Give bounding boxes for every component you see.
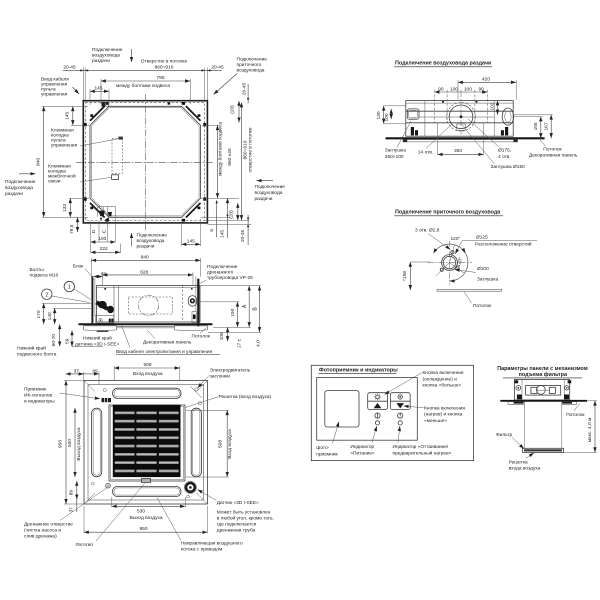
svg-text:Индикатор: Индикатор (350, 444, 374, 450)
svg-text:Потолок: Потолок (566, 412, 585, 418)
svg-text:между болтами подвеса: между болтами подвеса (116, 83, 170, 89)
svg-text:20-45: 20-45 (242, 83, 248, 96)
svg-text:в любой угол, кроме того,: в любой угол, кроме того, (217, 514, 274, 521)
svg-text:795: 795 (156, 75, 164, 81)
svg-text:Логотип: Логотип (76, 542, 94, 548)
svg-text:воздуховода: воздуховода (5, 186, 33, 191)
svg-text:(нагрев) и кнопка: (нагрев) и кнопка (424, 412, 463, 418)
svg-text:145: 145 (187, 238, 195, 244)
svg-text:20-45: 20-45 (211, 65, 224, 71)
svg-text:20-45: 20-45 (240, 230, 246, 243)
svg-text:Потолок: Потолок (473, 303, 492, 309)
svg-text:воздуховода: воздуховода (237, 69, 265, 74)
svg-text:3 отв. Ø2,8: 3 отв. Ø2,8 (415, 228, 440, 234)
svg-text:Фотоприемник и индикаторы: Фотоприемник и индикаторы (319, 368, 398, 374)
svg-text:межблочной: межблочной (48, 173, 76, 180)
svg-text:840: 840 (36, 157, 42, 165)
svg-text:2: 2 (45, 292, 48, 298)
svg-text:Индикатор «Оттаивание/: Индикатор «Оттаивание/ (393, 444, 449, 450)
svg-text:Электродвигатель: Электродвигатель (210, 368, 251, 374)
svg-text:Подключение: Подключение (255, 184, 286, 190)
svg-text:дренажного: дренажного (207, 271, 234, 276)
svg-text:37: 37 (68, 507, 74, 513)
svg-text:фото-: фото- (316, 445, 329, 451)
svg-text:145: 145 (94, 86, 102, 92)
svg-text:860~910: 860~910 (242, 140, 248, 159)
svg-text:потока с приводом: потока с приводом (181, 548, 223, 553)
svg-text:508: 508 (218, 440, 224, 448)
svg-text:20-45: 20-45 (63, 65, 76, 71)
svg-text:ИК-сигналов: ИК-сигналов (24, 393, 53, 399)
svg-text:79,5: 79,5 (69, 224, 75, 234)
svg-text:Расположение отверстий: Расположение отверстий (475, 240, 532, 247)
svg-text:дренажная труба: дренажная труба (217, 527, 256, 533)
svg-text:где подключается: где подключается (217, 522, 257, 527)
svg-text:Блок: Блок (73, 264, 85, 270)
svg-text:102: 102 (490, 102, 496, 110)
svg-text:Декоративная панель: Декоративная панель (529, 153, 578, 159)
svg-text:Выход воздуха: Выход воздуха (129, 515, 162, 521)
svg-text:Потолок: Потолок (192, 334, 211, 340)
svg-text:заслонки: заслонки (210, 375, 231, 380)
svg-text:59: 59 (64, 338, 70, 344)
svg-text:350×100: 350×100 (385, 154, 404, 160)
svg-text:145: 145 (65, 111, 71, 119)
svg-text:подвеса M10: подвеса M10 (30, 273, 59, 279)
svg-text:Подключение: Подключение (137, 233, 168, 239)
svg-text:50-70: 50-70 (51, 334, 57, 347)
svg-text:Приемник: Приемник (24, 387, 47, 393)
svg-text:(20): (20) (228, 210, 234, 219)
svg-text:508: 508 (143, 362, 151, 368)
svg-text:17 ±: 17 ± (236, 338, 242, 348)
svg-text:4 отв.: 4 отв. (498, 154, 511, 160)
svg-text:660 ±45: 660 ±45 (227, 148, 233, 166)
svg-text:6: 6 (209, 229, 215, 232)
svg-text:C: C (102, 229, 108, 233)
svg-text:воздуховода: воздуховода (137, 239, 165, 244)
svg-text:530: 530 (67, 439, 73, 447)
svg-text:Болты: Болты (30, 267, 45, 273)
svg-text:и индикаторы: и индикаторы (24, 400, 55, 405)
svg-text:Нижний край: Нижний край (83, 335, 112, 342)
svg-text:100: 100 (464, 86, 472, 92)
svg-text:Кнопка включения: Кнопка включения (423, 370, 464, 376)
svg-text:170: 170 (36, 310, 42, 318)
svg-text:датчика «3D I-SEE»: датчика «3D I-SEE» (75, 341, 120, 347)
svg-text:раздачи: раздачи (5, 192, 23, 197)
svg-text:кнопка «больше»: кнопка «больше» (423, 383, 462, 389)
svg-text:приточного: приточного (237, 63, 262, 68)
svg-text:Выход воздуха: Выход воздуха (76, 427, 82, 460)
svg-text:воздуховода: воздуховода (92, 54, 120, 59)
svg-text:Подключение: Подключение (92, 47, 123, 53)
svg-text:350: 350 (454, 148, 462, 154)
svg-text:Дренажное отверстие: Дренажное отверстие (24, 522, 73, 528)
svg-text:отверстие в потолке: отверстие в потолке (249, 127, 254, 173)
svg-text:130: 130 (376, 111, 382, 119)
svg-text:между болтами подвеса: между болтами подвеса (218, 122, 224, 176)
svg-text:1: 1 (68, 285, 71, 291)
svg-text:120°: 120° (451, 236, 461, 242)
svg-text:Заглушка: Заглушка (477, 276, 498, 282)
svg-text:подъема фильтра: подъема фильтра (519, 371, 568, 378)
svg-text:*158: *158 (402, 271, 408, 281)
svg-text:раздачи: раздачи (255, 197, 273, 202)
svg-text:Решетка (вход воздуха): Решетка (вход воздуха) (219, 394, 272, 400)
svg-text:связи: связи (48, 180, 61, 185)
svg-text:приемник: приемник (316, 452, 338, 457)
svg-text:950: 950 (139, 526, 147, 532)
svg-text:Ø125: Ø125 (476, 235, 488, 241)
svg-text:Может быть установлен: Может быть установлен (217, 509, 271, 515)
svg-text:Вход воздуха: Вход воздуха (227, 429, 233, 459)
svg-text:140: 140 (47, 312, 53, 320)
svg-text:слив дренажа): слив дренажа) (24, 534, 57, 540)
svg-text:100: 100 (450, 86, 458, 92)
svg-text:«меньше»: «меньше» (424, 419, 447, 424)
svg-text:Нижний край: Нижний край (17, 345, 46, 352)
svg-text:90: 90 (479, 86, 485, 92)
svg-text:Декоративная панель: Декоративная панель (143, 340, 192, 346)
svg-text:167: 167 (544, 122, 550, 130)
svg-text:D: D (91, 229, 97, 233)
svg-text:макс. 4,0 м: макс. 4,0 м (587, 418, 593, 442)
svg-text:133: 133 (62, 204, 68, 212)
svg-text:950: 950 (58, 440, 64, 448)
svg-text:Подключение: Подключение (207, 264, 238, 270)
svg-text:(чистка насоса и: (чистка насоса и (24, 528, 61, 534)
svg-text:управления: управления (51, 144, 78, 149)
svg-text:155: 155 (533, 122, 539, 130)
svg-text:100: 100 (384, 113, 390, 121)
svg-text:628: 628 (140, 269, 148, 275)
svg-text:Направляющая воздушного: Направляющая воздушного (181, 541, 243, 547)
svg-text:89: 89 (68, 490, 74, 496)
svg-text:Датчик «3D I-SEE»: Датчик «3D I-SEE» (217, 500, 259, 506)
svg-text:14 отв.: 14 отв. (418, 150, 433, 156)
svg-text:предварительный нагрев»: предварительный нагрев» (393, 449, 452, 456)
svg-text:Подключение приточного воздухо: Подключение приточного воздуховода (395, 210, 501, 216)
svg-text:840: 840 (141, 255, 149, 261)
svg-text:860~910: 860~910 (155, 65, 174, 71)
svg-text:4,0: 4,0 (256, 340, 262, 347)
svg-text:222: 222 (100, 246, 108, 252)
svg-text:Ø100: Ø100 (477, 266, 489, 272)
svg-text:37: 37 (74, 368, 80, 374)
svg-text:60: 60 (101, 271, 107, 277)
svg-text:«Питание»: «Питание» (350, 450, 375, 456)
svg-text:Фильтр: Фильтр (496, 432, 512, 438)
svg-text:трубопровода VP-25: трубопровода VP-25 (207, 275, 253, 281)
svg-text:530: 530 (137, 509, 145, 515)
svg-text:Подключение воздуховода раздач: Подключение воздуховода раздачи (395, 61, 491, 67)
svg-text:145: 145 (219, 230, 225, 238)
svg-text:105: 105 (219, 332, 225, 340)
svg-text:(20): (20) (230, 105, 236, 114)
svg-text:воздуховода: воздуховода (255, 191, 283, 196)
svg-text:управления: управления (41, 93, 68, 98)
svg-text:Ввод кабеля электропитания и у: Ввод кабеля электропитания и управления (116, 349, 213, 355)
svg-text:Кнопка включения: Кнопка включения (424, 405, 465, 411)
svg-text:Заглушка Ø150: Заглушка Ø150 (491, 164, 526, 170)
svg-text:подвесного болта: подвесного болта (17, 351, 57, 357)
svg-text:Решетка: Решетка (509, 459, 528, 465)
svg-text:Подключение: Подключение (5, 179, 36, 185)
svg-text:Подключение: Подключение (237, 57, 268, 63)
svg-text:(охлаждение) и: (охлаждение) и (423, 376, 458, 382)
svg-text:190: 190 (230, 308, 236, 316)
svg-text:89: 89 (92, 368, 98, 374)
svg-text:раздачи: раздачи (137, 245, 155, 250)
svg-text:раздачи: раздачи (92, 59, 110, 64)
svg-text:Вход воздуха: Вход воздуха (133, 371, 163, 377)
svg-text:входа воздуха: входа воздуха (509, 466, 541, 471)
svg-text:Отверстие в потолке: Отверстие в потолке (141, 59, 188, 65)
svg-text:Заглушка: Заглушка (385, 148, 406, 154)
svg-text:420: 420 (482, 76, 490, 82)
svg-text:193: 193 (98, 236, 106, 242)
svg-text:Потолок: Потолок (543, 146, 562, 152)
svg-text:90: 90 (438, 86, 444, 92)
svg-text:Ø175,: Ø175, (498, 148, 511, 154)
